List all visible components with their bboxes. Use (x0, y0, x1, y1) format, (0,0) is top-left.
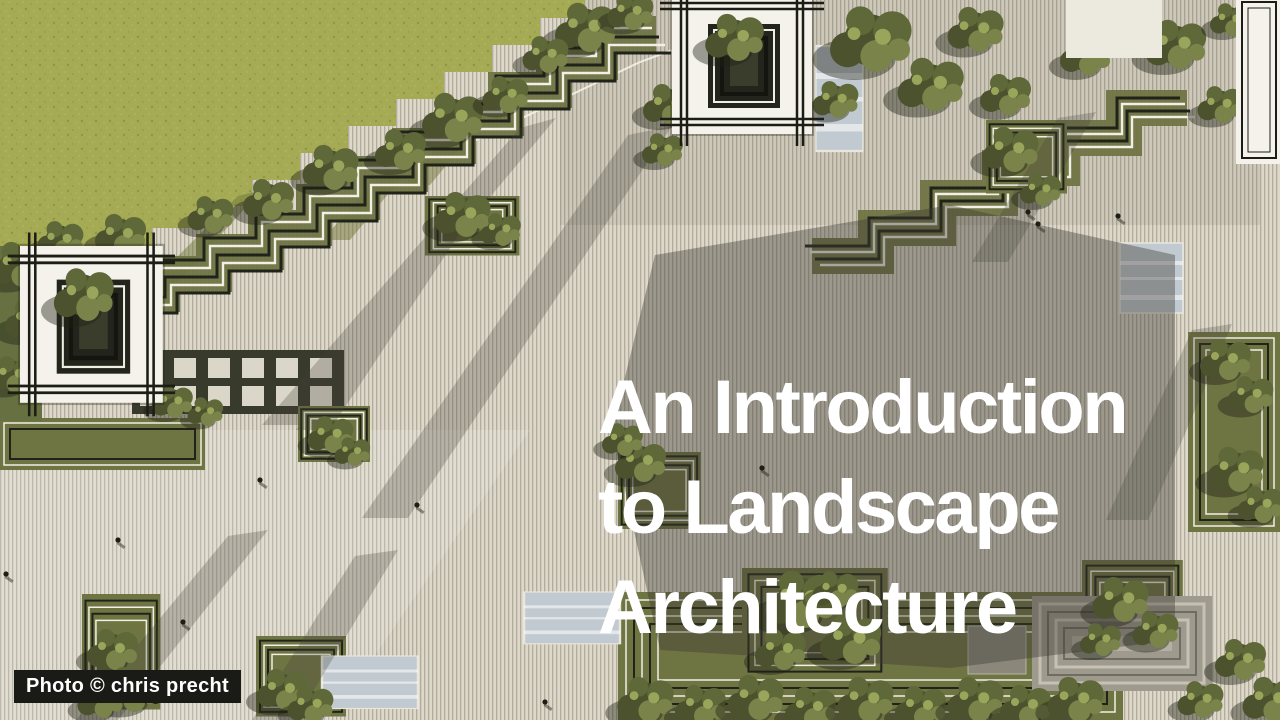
pavilion-roof-left (8, 233, 175, 417)
photo-credit-text: Photo © chris precht (26, 675, 229, 697)
pavilion-roof-top (660, 0, 824, 146)
video-title: An Introduction to Landscape Architectur… (598, 358, 1126, 658)
photo-credit-badge: Photo © chris precht (14, 670, 241, 703)
title-line-1: An Introduction (598, 358, 1126, 458)
title-line-3: Architecture (598, 558, 1126, 658)
title-line-2: to Landscape (598, 458, 1126, 558)
video-thumbnail-frame: An Introduction to Landscape Architectur… (0, 0, 1280, 720)
